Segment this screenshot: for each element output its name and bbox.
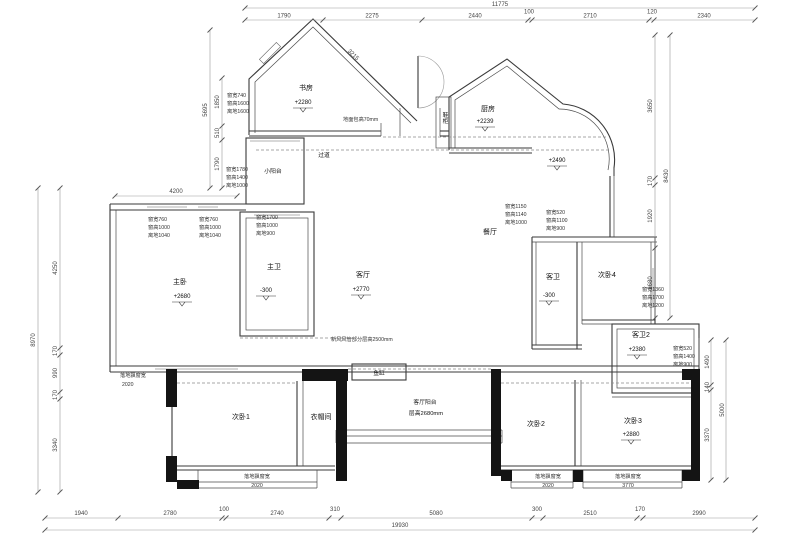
dim: 170 (648, 175, 654, 186)
structural-walls (166, 369, 700, 489)
level-symbol (547, 166, 567, 170)
level-symbol (627, 355, 647, 359)
dim: 3650 (648, 99, 654, 113)
dim: 1850 (215, 95, 221, 109)
window-tag: 窗宽520 (673, 344, 692, 352)
window-tag: 离地900 (673, 360, 692, 368)
floor-plan-page: 书房 +2280 厨房 +2239 +2490 过道 小阳台 鞋柜 主卧 +26… (0, 0, 789, 540)
dim: 510 (215, 127, 221, 138)
room-label-master-bath: 主卫 (267, 262, 281, 271)
floor-plan-canvas: 书房 +2280 厨房 +2239 +2490 过道 小阳台 鞋柜 主卧 +26… (0, 0, 789, 540)
level-symbol (351, 295, 371, 299)
window-tag: 窗高1000 (256, 221, 278, 229)
dim: 2275 (365, 14, 379, 20)
room-label-corridor: 过道 (318, 151, 330, 159)
dim: 170 (53, 389, 59, 400)
window-tag: 窗宽1700 (256, 213, 278, 221)
dim: 170 (635, 507, 646, 513)
dim: 2340 (697, 14, 711, 20)
room-label-master-bedroom: 主卧 (173, 277, 187, 286)
dim-left-chains: 8970 4250 170 990 170 3340 5695 1850 510… (31, 28, 240, 495)
bay-window-note-value: 2020 (251, 483, 263, 489)
level-living: +2770 (353, 287, 371, 293)
entry-door (400, 56, 449, 136)
dim-left-upper-total: 5695 (203, 103, 209, 117)
room-label-kitchen: 厨房 (481, 104, 495, 113)
bay-window-note-value: 2020 (122, 382, 134, 388)
room-label-dining: 餐厅 (483, 227, 497, 236)
window-tag: 窗宽760 (199, 215, 218, 223)
window-tag: 离地1000 (226, 181, 248, 189)
dim-right-lower-total: 5000 (720, 403, 726, 417)
walls-kitchen (436, 59, 615, 176)
walls-dining-guestbath-bedroom4 (532, 168, 657, 349)
bay-window-note: 落地飘窗宽 (244, 472, 270, 480)
room-label-guest-bath: 客卫 (546, 272, 560, 281)
dim: 2440 (468, 14, 482, 20)
window-tag: 离地1000 (505, 218, 527, 226)
dim-top-total: 11775 (492, 2, 509, 8)
window-tag: 窗高1400 (226, 173, 248, 181)
level-symbol (293, 108, 313, 112)
room-label-bedroom3: 次卧3 (624, 416, 642, 425)
window-tag: 窗高1100 (546, 216, 568, 224)
window-tag: 窗高1600 (227, 99, 249, 107)
note-ceiling-zone: 新风风管部分层高2500mm (331, 335, 393, 343)
window-tag: 离地1200 (642, 301, 664, 309)
dim: 1490 (705, 355, 711, 369)
dim-master-width: 4200 (169, 189, 183, 195)
window-tag: 离地1040 (148, 231, 170, 239)
dim: 1790 (215, 157, 221, 171)
level-symbol (172, 302, 192, 306)
room-label-shoe-cabinet: 鞋柜 (441, 111, 448, 125)
window-tag: 窗宽760 (148, 215, 167, 223)
dim-right-upper-total: 8430 (664, 169, 670, 183)
dim-left-total: 8970 (31, 333, 37, 347)
dim: 2740 (270, 511, 284, 517)
dim: 1790 (277, 14, 291, 20)
dim: 140 (705, 381, 711, 392)
dim: 1920 (648, 209, 654, 223)
dim: 2990 (692, 511, 706, 517)
fish-tank-label: 鱼缸 (373, 369, 385, 377)
walls-bedroom2-bedroom3 (501, 380, 691, 488)
dim: 2710 (583, 14, 597, 20)
level-kitchen-balcony: +2490 (549, 158, 567, 164)
room-label-closet: 衣帽间 (311, 412, 332, 421)
level-master-bath: -300 (260, 288, 273, 294)
window-tag: 窗高1400 (673, 352, 695, 360)
level-symbol (256, 296, 276, 300)
dim: 100 (219, 507, 230, 513)
dim-bottom-chain: 1940 2780 100 2740 310 5080 300 2510 170… (43, 507, 758, 533)
entry-door-arc (418, 56, 444, 108)
walls-bedroom1-closet (172, 372, 335, 488)
dim: 1940 (74, 511, 88, 517)
level-guest-bath2: +2380 (629, 347, 647, 353)
level-guest-bath: -300 (543, 293, 556, 299)
balcony-railing (336, 430, 502, 443)
dim: 2510 (583, 511, 597, 517)
window-tag: 离地1600 (227, 107, 249, 115)
dim: 170 (53, 345, 59, 356)
dim: 3340 (53, 438, 59, 452)
dim: 120 (647, 10, 658, 16)
dim: 990 (53, 367, 59, 378)
dim: 3370 (705, 428, 711, 442)
level-symbol (475, 127, 495, 131)
window-tag: 窗高1700 (642, 293, 664, 301)
window-tag: 窗高1000 (148, 223, 170, 231)
walls-master-suite (110, 138, 314, 372)
window-tag: 离地900 (546, 224, 565, 232)
bay-window-note-value: 3770 (622, 483, 634, 489)
dim: 2680 (648, 276, 654, 290)
window-tag: 窗高1140 (505, 210, 527, 218)
window-tag: 窗宽1780 (226, 165, 248, 173)
dim: 4250 (53, 261, 59, 275)
bay-window-note: 落地飘窗宽 (615, 472, 641, 480)
room-label-small-balcony: 小阳台 (264, 167, 282, 175)
living-balcony-label: 客厅阳台 (413, 398, 436, 406)
level-bedroom3: +2880 (623, 432, 641, 438)
living-balcony-height-note: 层高2680mm (409, 409, 443, 417)
room-label-bedroom4: 次卧4 (598, 270, 616, 279)
dim-bottom-total: 19930 (392, 523, 409, 529)
dim-diagonal-study: 3215 (346, 48, 360, 62)
dim: 300 (532, 507, 543, 513)
level-symbol (539, 301, 559, 305)
room-label-guest-bath2: 客卫2 (632, 330, 650, 339)
dim: 310 (330, 507, 341, 513)
level-master-bedroom: +2680 (174, 294, 192, 300)
bay-window-note-value: 2020 (542, 483, 554, 489)
note-floor-raise: 地面包高70mm (343, 115, 378, 123)
level-study: +2280 (295, 100, 313, 106)
level-kitchen: +2239 (477, 119, 495, 125)
room-label-bedroom2: 次卧2 (527, 419, 545, 428)
dim-top-chain: 11775 1790 2275 2440 100 2710 120 2340 3… (243, 2, 758, 63)
dim: 100 (524, 10, 535, 16)
window-tag: 窗宽1150 (505, 202, 527, 210)
window-tag: 窗高1000 (199, 223, 221, 231)
window-tag: 窗宽520 (546, 208, 565, 216)
window-tag: 窗宽740 (227, 91, 246, 99)
window-tag: 离地1040 (199, 231, 221, 239)
window-tags: 窗宽740 窗高1600 离地1600 窗宽1780 窗高1400 离地1000… (148, 91, 695, 368)
level-symbol (621, 440, 641, 444)
room-label-living: 客厅 (356, 270, 370, 279)
room-label-bedroom1: 次卧1 (232, 412, 250, 421)
dim: 2780 (163, 511, 177, 517)
dim: 5080 (429, 511, 443, 517)
window-tag: 离地900 (256, 229, 275, 237)
walls-study (249, 19, 417, 136)
bay-window-note: 落地飘窗宽 (120, 371, 146, 379)
room-label-study: 书房 (299, 83, 313, 92)
bay-window-note: 落地飘窗宽 (535, 472, 561, 480)
dim-right-chains: 3650 170 1920 2680 8430 1490 140 3370 50… (648, 33, 729, 483)
